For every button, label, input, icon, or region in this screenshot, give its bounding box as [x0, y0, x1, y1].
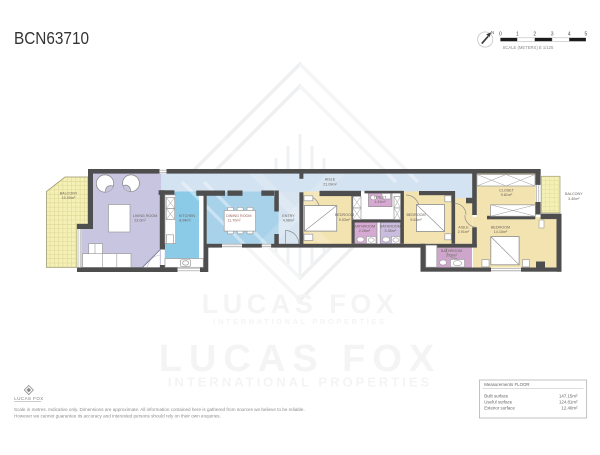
- svg-text:Built surface: Built surface: [484, 393, 509, 398]
- svg-text:CLOSET: CLOSET: [499, 188, 515, 192]
- svg-text:BALCONY: BALCONY: [60, 192, 78, 196]
- svg-text:BCN63710: BCN63710: [14, 28, 89, 48]
- svg-text:LUCAS FOX: LUCAS FOX: [14, 396, 43, 401]
- svg-text:Exterior surface: Exterior surface: [484, 406, 515, 411]
- svg-text:3.70m²: 3.70m²: [446, 253, 458, 257]
- svg-text:INTERNATIONAL PROPERTIES: INTERNATIONAL PROPERTIES: [168, 375, 432, 390]
- svg-text:ENTRY: ENTRY: [282, 214, 295, 218]
- svg-text:21.09m²: 21.09m²: [323, 182, 337, 186]
- svg-text:Measurements FLOOR: Measurements FLOOR: [484, 382, 529, 387]
- svg-text:3.40m²: 3.40m²: [568, 197, 580, 201]
- svg-text:BATHROOM: BATHROOM: [441, 249, 462, 253]
- svg-text:BEDROOM: BEDROOM: [335, 213, 354, 217]
- svg-text:5: 5: [585, 32, 588, 38]
- svg-text:Useful surface: Useful surface: [484, 399, 513, 404]
- svg-text:AISLE: AISLE: [325, 178, 336, 182]
- svg-text:SCALE (METERS) E 1/125: SCALE (METERS) E 1/125: [503, 45, 554, 50]
- svg-text:12.40m²: 12.40m²: [561, 406, 578, 411]
- svg-text:4.06m²: 4.06m²: [283, 219, 295, 223]
- svg-text:0: 0: [499, 32, 502, 38]
- svg-text:2.28m²: 2.28m²: [359, 229, 371, 233]
- svg-text:However we cannot guarantee it: However we cannot guarantee its accuracy…: [14, 414, 221, 419]
- svg-text:Scale in metres. Indicative on: Scale in metres. Indicative only. Dimens…: [14, 407, 305, 412]
- svg-text:9.53m²: 9.53m²: [339, 218, 351, 222]
- svg-text:1: 1: [516, 32, 519, 38]
- svg-text:23.0m²: 23.0m²: [134, 218, 146, 222]
- svg-text:BEDROOM: BEDROOM: [491, 225, 510, 229]
- svg-text:TOILET: TOILET: [374, 196, 388, 200]
- svg-text:14.15m²: 14.15m²: [494, 230, 508, 234]
- svg-text:4: 4: [568, 32, 571, 38]
- svg-text:124.81m²: 124.81m²: [559, 399, 578, 404]
- svg-text:BEDROOM: BEDROOM: [406, 213, 425, 217]
- svg-text:1.41m²: 1.41m²: [374, 200, 386, 204]
- svg-text:BATHROOM: BATHROOM: [354, 224, 375, 228]
- svg-text:LIVING ROOM: LIVING ROOM: [133, 214, 158, 218]
- svg-text:INTERNATIONAL PROPERTIES: INTERNATIONAL PROPERTIES: [213, 317, 386, 326]
- svg-text:11.70m²: 11.70m²: [227, 219, 241, 223]
- svg-text:8.94m²: 8.94m²: [179, 218, 191, 222]
- svg-text:N: N: [491, 30, 494, 35]
- svg-text:2: 2: [533, 32, 536, 38]
- svg-text:LUCAS FOX: LUCAS FOX: [202, 289, 399, 319]
- svg-text:9.81m²: 9.81m²: [501, 193, 513, 197]
- svg-text:DINING ROOM: DINING ROOM: [226, 214, 251, 218]
- svg-text:BATHROOM: BATHROOM: [380, 224, 401, 228]
- svg-text:9.63m²: 9.63m²: [410, 218, 422, 222]
- svg-text:2.91m²: 2.91m²: [458, 230, 470, 234]
- svg-text:KITCHEN: KITCHEN: [179, 214, 196, 218]
- svg-text:BALCONY: BALCONY: [565, 192, 583, 196]
- svg-text:10.00m²: 10.00m²: [62, 196, 76, 200]
- svg-text:3: 3: [551, 32, 554, 38]
- svg-text:AISLE: AISLE: [458, 225, 469, 229]
- svg-text:147.15m²: 147.15m²: [559, 393, 578, 398]
- svg-text:3.38m²: 3.38m²: [385, 229, 397, 233]
